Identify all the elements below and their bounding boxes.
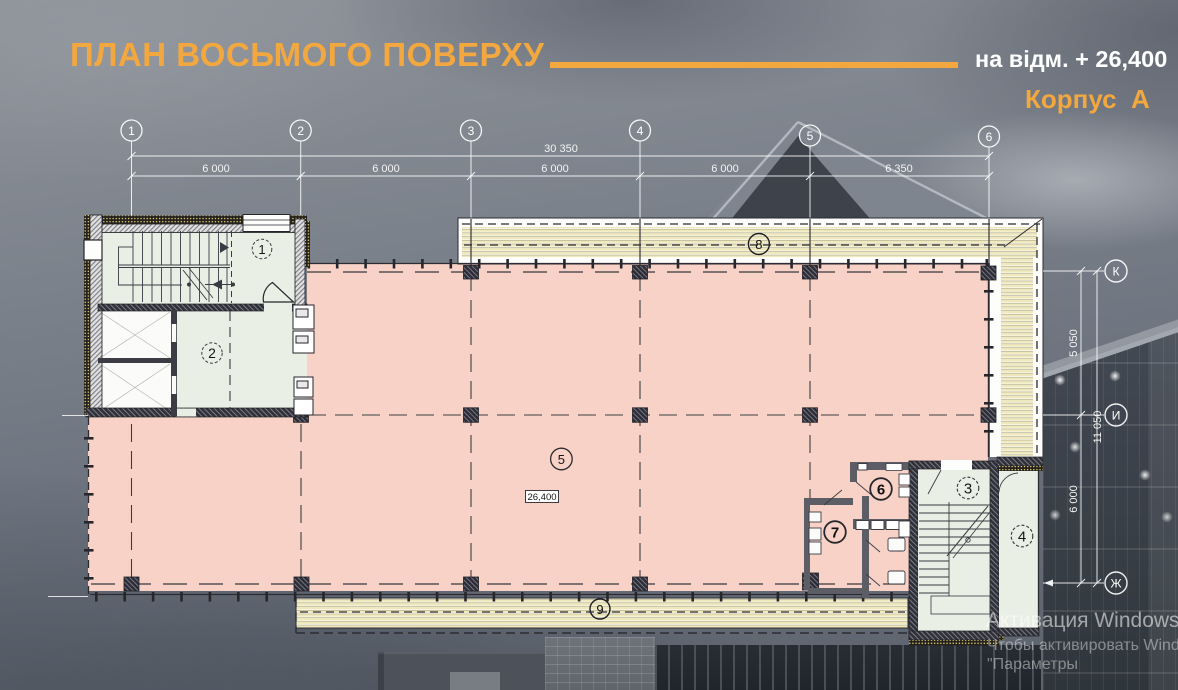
- svg-text:5 050: 5 050: [1068, 329, 1080, 357]
- svg-text:Ж: Ж: [1110, 577, 1121, 591]
- svg-text:3: 3: [468, 124, 475, 138]
- svg-text:7: 7: [831, 525, 839, 542]
- svg-text:2: 2: [297, 124, 304, 138]
- svg-text:6 000: 6 000: [1068, 485, 1080, 513]
- svg-text:6 350: 6 350: [885, 163, 913, 175]
- svg-text:6 000: 6 000: [711, 163, 739, 175]
- svg-text:2: 2: [208, 345, 216, 361]
- svg-text:6: 6: [986, 130, 993, 144]
- svg-text:3: 3: [964, 481, 972, 498]
- svg-text:И: И: [1112, 409, 1121, 423]
- svg-text:6 000: 6 000: [372, 163, 400, 175]
- svg-text:1: 1: [128, 124, 135, 138]
- svg-text:6 000: 6 000: [202, 163, 230, 175]
- svg-text:8: 8: [755, 237, 762, 252]
- svg-text:6: 6: [877, 482, 885, 499]
- svg-text:5: 5: [558, 452, 565, 467]
- svg-text:К: К: [1113, 265, 1120, 279]
- svg-text:4: 4: [1018, 529, 1026, 546]
- svg-text:4: 4: [637, 124, 644, 138]
- svg-text:5: 5: [807, 129, 814, 143]
- svg-text:11 050: 11 050: [1092, 411, 1104, 444]
- svg-text:30 350: 30 350: [544, 143, 578, 155]
- svg-text:9: 9: [596, 602, 603, 617]
- svg-text:26,400: 26,400: [527, 492, 556, 503]
- svg-text:1: 1: [258, 242, 265, 257]
- svg-text:6 000: 6 000: [541, 163, 569, 175]
